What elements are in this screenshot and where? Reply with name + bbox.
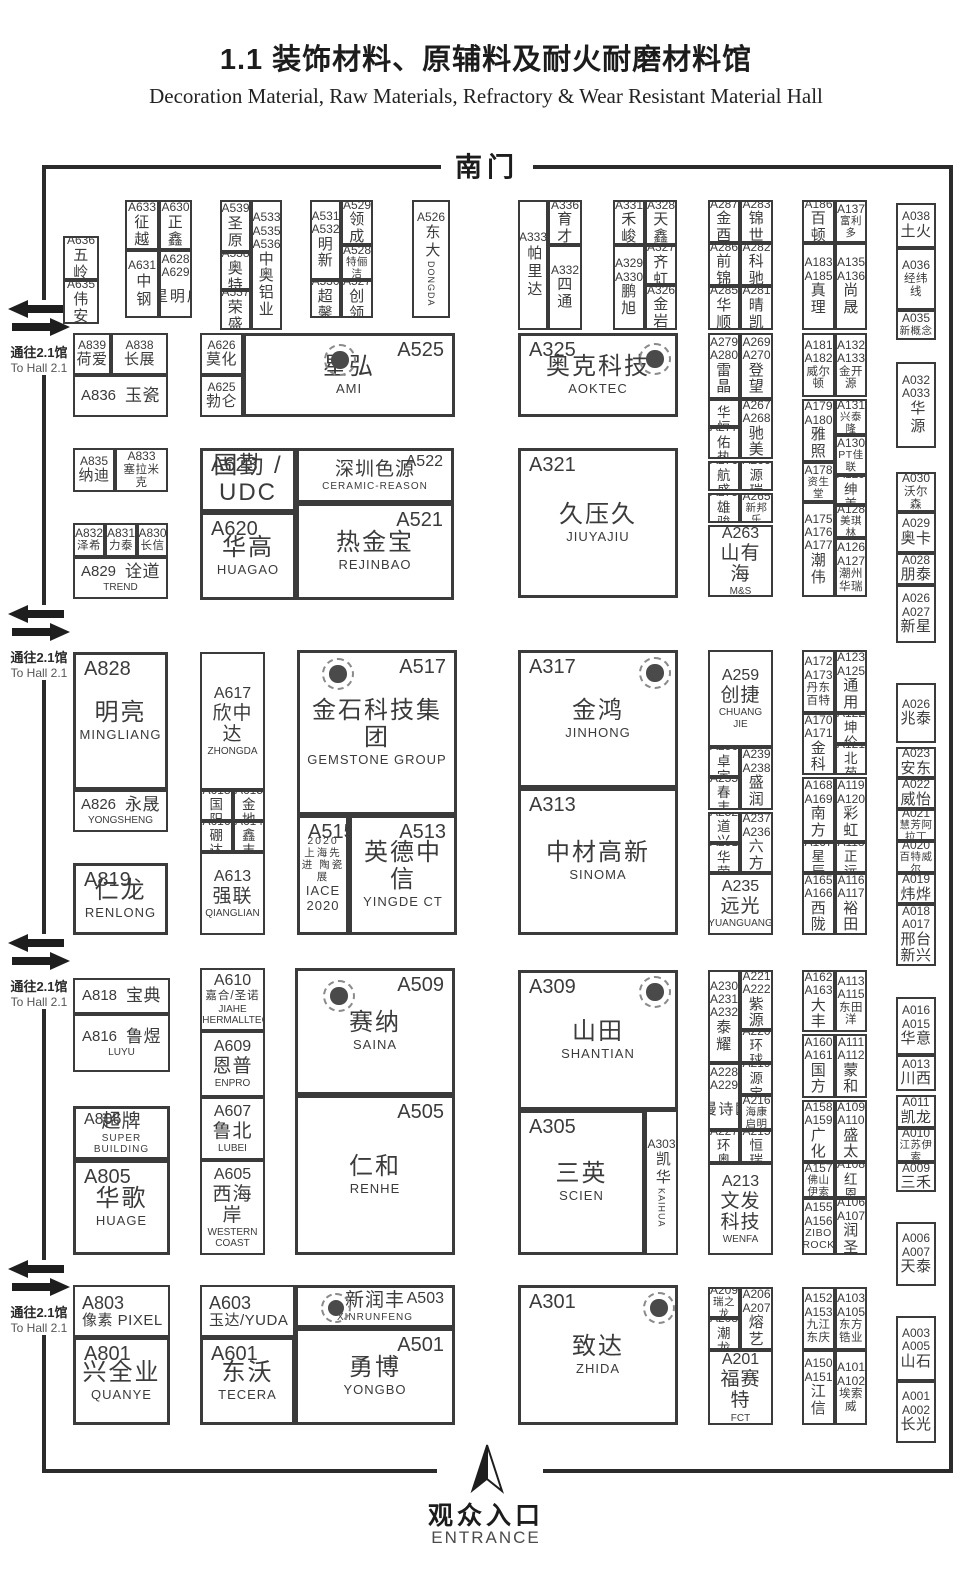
- booth-id: A106 A107: [837, 1198, 865, 1223]
- booth-id: A132 A133: [837, 339, 865, 366]
- booth-name-zh: 蒙和: [838, 1063, 864, 1097]
- booth-id: A101 A102: [837, 1361, 865, 1388]
- booth-name-zh: 百特威尔: [899, 852, 933, 873]
- booth-id: A321: [529, 454, 576, 476]
- booth-id: A001 A002: [899, 1390, 933, 1417]
- booth-id: A251: [710, 843, 738, 850]
- booth-A035: A035新概念: [896, 310, 936, 340]
- booth-name-zh: 凯龙: [900, 1110, 931, 1127]
- booth-A332: A332四通: [548, 245, 582, 330]
- booth-name-en: JIUYAJIU: [566, 530, 629, 545]
- booth-A121: A121北苑: [835, 744, 867, 775]
- two-way-arrow-icon: [8, 605, 70, 641]
- booth-id: A130: [837, 437, 865, 450]
- booth-A150: A150 A151江信: [802, 1350, 835, 1425]
- booth-name-zh: 华恒: [711, 405, 737, 427]
- booth-name-en: YUANGUANG: [708, 918, 772, 929]
- booth-id: A259: [722, 667, 759, 685]
- booth-name-zh: 领成: [344, 212, 370, 245]
- booth-name-zh: 晴凯: [743, 298, 770, 330]
- booth-id: A266: [742, 461, 770, 468]
- booth-name-zh: 兴泰隆: [838, 412, 864, 435]
- booth-id: A601: [211, 1343, 258, 1365]
- booth-id: A833: [127, 450, 155, 463]
- booth-name-zh: 华歌: [96, 1186, 148, 1213]
- booth-name-zh: 鹏旭: [616, 284, 642, 318]
- booth-id: A006 A007: [899, 1232, 933, 1259]
- booth-name-zh: 鑫丰: [236, 828, 262, 852]
- booth-name-zh: 长展: [124, 352, 155, 369]
- booth-name-en: LUBEI: [218, 1143, 247, 1154]
- hall-map: 1.1 装饰材料、原辅料及耐火耐磨材料馆 Decoration Material…: [0, 0, 972, 1574]
- booth-name-zh: 荣盛: [223, 300, 248, 330]
- to-hall-connector: 通往2.1馆To Hall 2.1: [4, 605, 74, 680]
- booth-id: A277: [710, 427, 738, 435]
- booth-name-zh: 佑热: [711, 435, 737, 459]
- booth-A509: A509赛纳SAINA: [295, 968, 455, 1095]
- booth-A286: A286前锦: [708, 243, 740, 286]
- booth-A157: A157佛山伊索: [802, 1162, 835, 1198]
- booth-A118: A118正远: [835, 842, 867, 873]
- booth-id: A201: [722, 1351, 759, 1369]
- booth-name-en: IACE 2020: [301, 884, 345, 913]
- booth-A530: A530超馨: [310, 280, 341, 318]
- booth-A287: A287金酉: [708, 200, 740, 243]
- entrance-label-zh: 观众入口: [0, 1496, 972, 1532]
- booth-id: A022: [902, 778, 930, 791]
- booth-id: A609: [214, 1038, 251, 1056]
- booth-name-zh: 正鑫: [162, 215, 189, 249]
- booth-name-en: HUAGE: [96, 1214, 147, 1229]
- booth-A336: A336育才: [548, 200, 582, 245]
- pillar-icon: [322, 658, 354, 690]
- booth-name-zh: 嘉合/圣诺: [205, 990, 259, 1003]
- booth-A325: A325奥克科技AOKTEC: [518, 333, 678, 417]
- booth-A158: A158 A159广化: [802, 1100, 835, 1162]
- booth-name-en: YINGDE CT: [363, 895, 443, 910]
- booth-name-zh: 奥特: [223, 261, 248, 290]
- booth-name-zh: 天鑫: [648, 212, 674, 245]
- page-subtitle: Decoration Material, Raw Materials, Refr…: [0, 84, 972, 109]
- booth-A539: A539圣原: [220, 200, 251, 252]
- booth-A501: A501勇博YONGBO: [295, 1328, 455, 1425]
- booth-A113: A113 A115东田洋: [835, 970, 867, 1032]
- booth-name-zh: 明亮: [95, 700, 147, 727]
- pillar-icon: [643, 1292, 675, 1324]
- booth-A816: A816鲁煜LUYU: [73, 1014, 170, 1072]
- booth-A123: A123 A125通用: [835, 650, 867, 713]
- booth-name-zh: 欧诗漫: [708, 1093, 740, 1127]
- booth-A259: A259创捷CHUANG JIE: [708, 650, 773, 747]
- booth-name-en: SHANTIAN: [561, 1047, 635, 1062]
- booth-name-zh: 瑞之龙: [711, 1297, 737, 1318]
- booth-id: A325: [529, 339, 576, 361]
- booth-A305: A305三英SCIEN: [518, 1110, 645, 1255]
- booth-A281: A281晴凯: [740, 286, 773, 330]
- booth-name-zh: 伟安: [66, 292, 96, 324]
- booth-name-zh: 中钢: [134, 273, 151, 309]
- booth-name-zh: 深圳色源: [335, 459, 415, 480]
- pillar-icon: [639, 976, 671, 1008]
- booth-A806: A806超牌SUPER BUILDING: [73, 1106, 170, 1160]
- booth-A503: A503新润丰XINRUNFENG: [295, 1285, 455, 1328]
- booth-A317: A317金鸿JINHONG: [518, 650, 678, 788]
- booth-id: A255: [710, 777, 738, 785]
- booth-id: A220: [742, 1030, 770, 1038]
- booth-name-zh: 佛山伊索: [805, 1175, 832, 1198]
- booth-A030: A030沃尔森: [896, 472, 936, 512]
- booth-id: A178: [804, 464, 832, 477]
- booth-A003: A003 A005山石: [896, 1316, 936, 1381]
- booth-id: A167: [804, 842, 832, 849]
- booth-name-zh: 华意: [900, 1031, 931, 1048]
- booth-id: A620: [211, 518, 258, 540]
- booth-name-zh: 百顿: [805, 211, 832, 243]
- booth-name-zh: 恩普: [212, 1056, 252, 1077]
- booth-A528: A528特俪洁: [341, 245, 373, 280]
- booth-A626: A626莫化: [200, 333, 243, 375]
- booth-name-en: GEMSTONE GROUP: [307, 753, 446, 768]
- booth-A635: A635伟安: [63, 280, 99, 324]
- booth-name-zh: 泽希: [77, 540, 101, 553]
- booth-id: A116 A117: [837, 874, 864, 901]
- booth-name-zh: 华荣: [711, 850, 737, 873]
- booth-name-en: ZHIDA: [576, 1362, 620, 1377]
- booth-id: A309: [529, 976, 576, 998]
- to-hall-label-zh: 通往2.1馆: [4, 647, 74, 666]
- booth-id: A158 A159: [804, 1101, 832, 1128]
- booth-A515: A5152020 上海先进 陶瓷展IACE 2020: [297, 815, 349, 935]
- to-hall-label-en: To Hall 2.1: [4, 361, 74, 375]
- booth-name-zh: 源瑞: [743, 468, 770, 491]
- booth-id: A305: [529, 1116, 576, 1138]
- booth-A132: A132 A133金开源: [835, 333, 867, 397]
- booth-id: A026 A027: [899, 592, 933, 619]
- booth-name-zh: 南方: [805, 806, 832, 840]
- booth-id: A607: [214, 1103, 251, 1121]
- booth-name-en: RENHE: [350, 1182, 401, 1197]
- booth-name-zh: 九江东庆: [805, 1319, 832, 1345]
- booth-name-en: CHUANG JIE: [711, 707, 770, 729]
- booth-name-zh: 威尔顿: [805, 366, 832, 392]
- booth-A228: A228 A229欧诗漫: [708, 1063, 740, 1130]
- booth-name-zh: 三禾: [900, 1175, 931, 1192]
- booth-id: A221 A222: [742, 970, 770, 997]
- booth-A178: A178资生堂: [802, 462, 835, 502]
- to-hall-label-zh: 通往2.1馆: [4, 342, 74, 361]
- booth-A036: A036经纬线: [896, 248, 936, 310]
- booth-id: A313: [529, 794, 576, 816]
- booth-A838: A838长展: [111, 333, 168, 375]
- booth-A301: A301致达ZHIDA: [518, 1285, 678, 1425]
- booth-A832: A832泽希: [73, 523, 105, 557]
- entrance-label-en: ENTRANCE: [0, 1528, 972, 1548]
- booth-id: A831: [107, 527, 135, 540]
- booth-A625: A625勃仑: [200, 375, 243, 417]
- booth-id: A019: [902, 873, 930, 886]
- booth-A023: A023安东: [896, 747, 936, 778]
- two-way-arrow-icon: [8, 1260, 70, 1296]
- booth-A613: A613强联QIANGLIAN: [200, 852, 265, 935]
- booth-name-zh: 勃仑: [206, 394, 237, 411]
- booth-A026: A026 A027新星: [896, 585, 936, 643]
- booth-A130: A130PT佳联: [835, 435, 867, 475]
- booth-A266: A266源瑞: [740, 461, 773, 491]
- booth-name-zh: 金鸿: [572, 698, 624, 725]
- booth-name-zh: 科驰: [743, 254, 770, 286]
- pillar-icon: [321, 1293, 351, 1323]
- booth-A020: A020百特威尔: [896, 841, 936, 873]
- south-gate-label: 南门: [441, 146, 533, 185]
- booth-A101: A101 A102埃索威: [835, 1350, 867, 1425]
- booth-A618: A618国阳: [200, 790, 233, 821]
- booth-id: A168 A169: [804, 779, 832, 806]
- booth-A235: A235远光YUANGUANG: [708, 873, 773, 935]
- booth-A333: A333帕里达: [518, 200, 548, 330]
- booth-A826: A826永晟YONGSHENG: [73, 790, 168, 832]
- booth-A251: A251华荣: [708, 843, 740, 873]
- booth-id: A333: [519, 231, 547, 244]
- booth-A617: A617欣中达ZHONGDA: [200, 652, 265, 790]
- booth-name-zh: 航盛: [711, 468, 737, 491]
- booth-name-zh: 塞拉米克: [118, 464, 165, 490]
- booth-id: A165 A166: [804, 874, 832, 901]
- booth-name-zh: 紫源: [743, 997, 770, 1030]
- booth-id: A613: [214, 868, 251, 886]
- booth-A129: A129绅美: [835, 475, 867, 505]
- booth-id: A028: [902, 554, 930, 567]
- booth-id: A179 A180: [804, 400, 832, 427]
- booth-id: A016 A015: [899, 1004, 933, 1031]
- booth-name-zh: 帕里达: [525, 245, 542, 299]
- page-title: 1.1 装饰材料、原辅料及耐火耐磨材料馆: [0, 36, 972, 78]
- booth-A285: A285华顺: [708, 286, 740, 330]
- booth-A279: A279 A280雷晶: [708, 333, 740, 399]
- booth-id: A317: [529, 656, 576, 678]
- booth-name-zh: 山有海: [711, 543, 770, 586]
- booth-name-en: SAINA: [353, 1038, 397, 1053]
- booth-A215: A215恒瑞: [740, 1130, 773, 1163]
- booth-name-zh: 潮龙: [711, 1326, 737, 1350]
- booth-A623: A623固勤 / UDC: [200, 448, 296, 512]
- booth-name-zh: 2020 上海先进 陶瓷展: [301, 836, 345, 883]
- booth-id: A626: [207, 339, 235, 352]
- booth-A237: A237 A236六方: [740, 812, 773, 873]
- booth-A201: A201福赛特FCT: [708, 1350, 773, 1425]
- booth-id: A501: [397, 1334, 444, 1356]
- booth-name-zh: 慧芳阿拉丁: [899, 820, 933, 841]
- to-hall-label-en: To Hall 2.1: [4, 1321, 74, 1335]
- booth-name-zh: 金开源: [838, 366, 864, 392]
- booth-name-zh: 正远: [838, 849, 864, 873]
- booth-id: A215: [742, 1130, 770, 1138]
- booth-id: A029: [902, 517, 930, 530]
- booth-id: A605: [214, 1166, 251, 1184]
- booth-A327: A327齐虹: [645, 245, 677, 285]
- booth-A839: A839荷爱: [73, 333, 111, 375]
- booth-id: A206 A207: [742, 1288, 770, 1315]
- booth-name-zh: 远光: [720, 896, 760, 917]
- booth-A122: A122坤伦: [835, 713, 867, 744]
- booth-name-zh: 五岭: [66, 248, 96, 280]
- booth-name-zh: 邢台新兴: [899, 932, 933, 966]
- booth-A276: A276航盛: [708, 461, 740, 491]
- pillar-icon: [323, 980, 355, 1012]
- booth-name-en: JINHONG: [565, 726, 631, 741]
- booth-A607: A607鲁北LUBEI: [200, 1097, 265, 1160]
- booth-A021: A021慧芳阿拉丁: [896, 809, 936, 841]
- booth-name-zh: 诠道: [125, 562, 160, 581]
- booth-id: A230 A231 A232: [710, 980, 738, 1020]
- booth-A522: A522深圳色源CERAMIC-REASON: [296, 448, 454, 503]
- booth-id: A603: [209, 1293, 251, 1313]
- booth-A026: A026兆泰: [896, 683, 936, 743]
- booth-name-zh: 创捷: [720, 685, 760, 706]
- booth-name-zh: 北苑: [838, 751, 864, 775]
- booth-id: A119 A120: [837, 779, 865, 806]
- booth-id: A832: [75, 527, 103, 540]
- to-hall-label-en: To Hall 2.1: [4, 666, 74, 680]
- booth-name-zh: 兆泰: [900, 711, 931, 728]
- booth-A006: A006 A007天泰: [896, 1222, 936, 1286]
- booth-A830: A830长信: [137, 523, 168, 557]
- booth-A601: A601东沃TECERA: [200, 1337, 295, 1425]
- booth-A326: A326金岩: [645, 285, 677, 330]
- booth-id: A633: [128, 201, 156, 214]
- booth-name-zh: 川西: [900, 1071, 931, 1088]
- booth-name-zh: 鲁煜: [126, 1027, 161, 1046]
- booth-name-zh: 纳迪: [78, 468, 109, 485]
- booth-id: A517: [399, 656, 446, 678]
- booth-id: A836: [81, 388, 116, 405]
- booth-name-zh: 仁和: [349, 1154, 401, 1181]
- booth-id: A103 A105: [837, 1292, 865, 1319]
- booth-name-en: YONGSHENG: [76, 815, 165, 826]
- booth-name-zh: 超馨: [313, 289, 338, 318]
- pillar-icon: [639, 343, 671, 375]
- booth-name-zh: 禾峻: [616, 212, 642, 245]
- booth-A275: A275雄骏: [708, 493, 740, 523]
- booth-id: A838: [125, 339, 153, 352]
- booth-name-en: TECERA: [218, 1388, 277, 1403]
- booth-name-zh: 威怡: [900, 792, 931, 809]
- booth-name-zh: 像素 PIXEL: [82, 1313, 163, 1330]
- booth-id: A263: [722, 525, 759, 543]
- booth-name-zh: 东方锆业: [838, 1319, 864, 1345]
- booth-name-zh: 西海岸: [203, 1184, 262, 1227]
- booth-id: A228 A229: [710, 1066, 738, 1093]
- booth-name-en: YONGBO: [343, 1383, 406, 1398]
- booth-A119: A119 A120彩虹: [835, 777, 867, 842]
- booth-A131: A131兴泰隆: [835, 399, 867, 435]
- booth-id: A503: [407, 1290, 444, 1308]
- booth-A328: A328天鑫: [645, 200, 677, 245]
- booth-A803: A803像素 PIXEL: [73, 1285, 170, 1337]
- booth-id: A235: [722, 878, 759, 896]
- booth-A168: A168 A169南方: [802, 777, 835, 842]
- booth-name-zh: 江苏伊索: [899, 1140, 933, 1162]
- booth-id: A839: [78, 339, 106, 352]
- booth-name-zh: 前锦: [711, 254, 737, 286]
- booth-id: A829: [81, 564, 116, 581]
- booth-id: A181 A182: [804, 339, 832, 366]
- booth-name-zh: 朋泰: [900, 567, 931, 584]
- booth-A615: A615金地: [233, 790, 265, 821]
- booth-name-zh: 新润丰: [345, 1290, 405, 1311]
- booth-id: A129: [837, 475, 865, 482]
- booth-A505: A505仁和RENHE: [295, 1095, 455, 1255]
- booth-name-en: FCT: [731, 1413, 750, 1424]
- booth-name-zh: 中奥铝业: [254, 252, 279, 319]
- booth-A269: A269 A270登望: [740, 333, 773, 399]
- booth-A009: A009三禾: [896, 1162, 936, 1192]
- booth-A620: A620华高HUAGAO: [200, 512, 296, 600]
- booth-A016: A016 A015华意: [896, 997, 936, 1055]
- booth-id: A625: [207, 381, 235, 394]
- booth-name-zh: 炜烨: [900, 887, 931, 904]
- booth-name-en: AOKTEC: [568, 382, 627, 397]
- booth-A013: A013川西: [896, 1055, 936, 1091]
- booth-name-en: ENPRO: [215, 1078, 251, 1089]
- booth-id: A155 A156: [804, 1201, 832, 1228]
- booth-name-zh: 圣原: [223, 216, 248, 250]
- booth-A128: A128美琪林: [835, 505, 867, 538]
- booth-A221: A221 A222紫源: [740, 970, 773, 1030]
- booth-id: A816: [82, 1029, 117, 1046]
- booth-A329: A329 A330鹏旭: [613, 245, 645, 330]
- booth-A801: A801兴全业QUANYE: [73, 1337, 170, 1425]
- booth-id: A618: [202, 790, 230, 797]
- booth-id: A513: [399, 821, 446, 843]
- booth-A038: A038土火: [896, 203, 936, 248]
- booth-name-zh: 广化: [805, 1128, 832, 1162]
- booth-id: A026: [902, 698, 930, 711]
- booth-name-zh: 凯华: [653, 1151, 670, 1187]
- booth-A165: A165 A166西陇: [802, 873, 835, 935]
- booth-A517: A517金石科技集团GEMSTONE GROUP: [297, 650, 457, 815]
- booth-A833: A833塞拉米克: [115, 448, 168, 492]
- booth-name-zh: 文发科技: [711, 1191, 770, 1234]
- booth-name-zh: 金岩: [648, 297, 674, 330]
- booth-A263: A263山有海M&S: [708, 525, 773, 597]
- booth-A206: A206 A207熔艺: [740, 1287, 773, 1350]
- booth-A603: A603玉达/YUDA: [200, 1285, 295, 1337]
- booth-A219: A219源宝: [740, 1063, 773, 1095]
- booth-name-en: QUANYE: [91, 1388, 152, 1403]
- booth-id: A631: [128, 259, 156, 272]
- booth-A186: A186百顿: [802, 200, 835, 243]
- to-hall-label-zh: 通往2.1馆: [4, 976, 74, 995]
- booth-name-zh: 荷爱: [76, 352, 107, 369]
- booth-A633: A633征越: [125, 200, 159, 250]
- booth-A513: A513英德中信YINGDE CT: [349, 815, 457, 935]
- booth-id: A801: [84, 1343, 131, 1365]
- booth-id: A269 A270: [742, 336, 770, 363]
- booth-name-zh: 新星: [900, 619, 931, 636]
- booth-name-en: JIAHE THERMALLTEC: [200, 1004, 265, 1026]
- booth-id: A526: [417, 211, 445, 224]
- booth-id: A227: [710, 1130, 738, 1138]
- booth-id: A162 A163: [804, 971, 832, 998]
- booth-name-zh: 育才: [551, 212, 579, 245]
- booth-name-zh: 致达: [572, 1334, 624, 1361]
- booth-name-zh: 长信: [141, 540, 165, 553]
- booth-id: A276: [710, 461, 738, 468]
- booth-name-en: TREND: [76, 582, 165, 593]
- booth-id: A806: [84, 1111, 121, 1129]
- booth-name-zh: 新概念: [900, 326, 933, 338]
- booth-name-zh: 盛太: [838, 1128, 864, 1162]
